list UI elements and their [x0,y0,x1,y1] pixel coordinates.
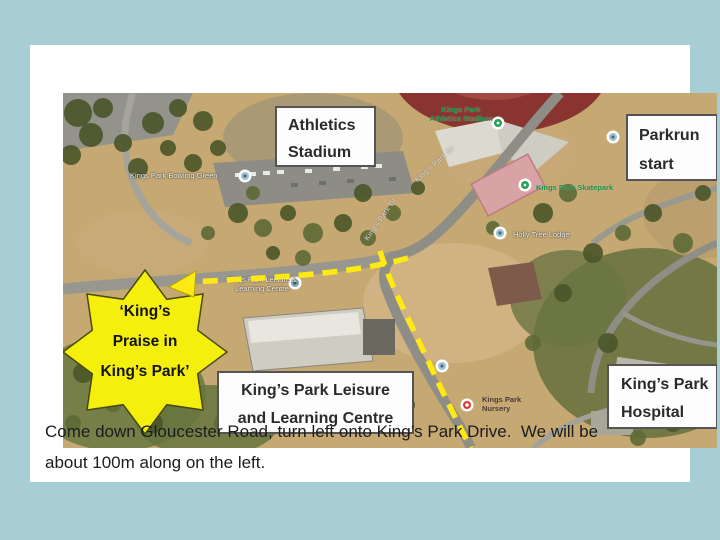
caption-line2: about 100m along on the left. [45,447,677,478]
map-pin-parkrun-icon [607,131,620,144]
lodge-building [488,262,542,306]
poi-label-athletics-line1: Kings Park [425,105,497,114]
callout-parkrun-line2: start [639,150,716,179]
poi-label-bowling: Kings Park Bowling Green [130,171,218,180]
poi-label-leisure-line2: Learning Centre [222,284,302,293]
callout-leisure-line1: King’s Park Leisure [219,377,412,405]
map-pin-skatepark-icon [519,179,532,192]
map-pin-lodge-icon [494,227,507,240]
poi-label-leisure-line1: Kings Park Leisure & [222,275,302,284]
starburst-line1: ‘King’s [65,297,225,327]
callout-parkrun-start: Parkrun start [626,114,717,181]
starburst-line3: King’s Park’ [65,357,225,387]
callout-parkrun-line1: Parkrun [639,121,716,150]
callout-hospital-line1: King’s Park [621,371,716,399]
callout-athletics-stadium: Athletics Stadium [275,106,376,167]
starburst-text: ‘King’s Praise in King’s Park’ [65,297,225,387]
poi-label-athletics-line2: Athletics Stadium [425,114,497,123]
poi-label-club-line1: Kings Park [482,395,521,404]
screenshot-root: Kings Park Bowling Green Kings Park Athl… [0,0,720,540]
map-image: Kings Park Bowling Green Kings Park Athl… [63,93,717,448]
poi-label-skatepark: Kings Park Skatepark [536,183,613,192]
caption-line1: Come down Gloucester Road, turn left ont… [45,416,677,447]
poi-label-club-line2: Nursery [482,404,521,413]
caption-directions: Come down Gloucester Road, turn left ont… [45,416,677,478]
figure-frame: Kings Park Bowling Green Kings Park Athl… [30,45,690,482]
callout-athletics-line2: Stadium [288,139,374,166]
callout-athletics-line1: Athletics [288,112,374,139]
map-pin-nursery-icon [461,399,474,412]
map-pin-drive-icon [436,360,449,373]
map-pin-bowling-icon [239,170,252,183]
starburst-line2: Praise in [65,327,225,357]
poi-label-holly: Holly Tree Lodge [513,230,570,239]
